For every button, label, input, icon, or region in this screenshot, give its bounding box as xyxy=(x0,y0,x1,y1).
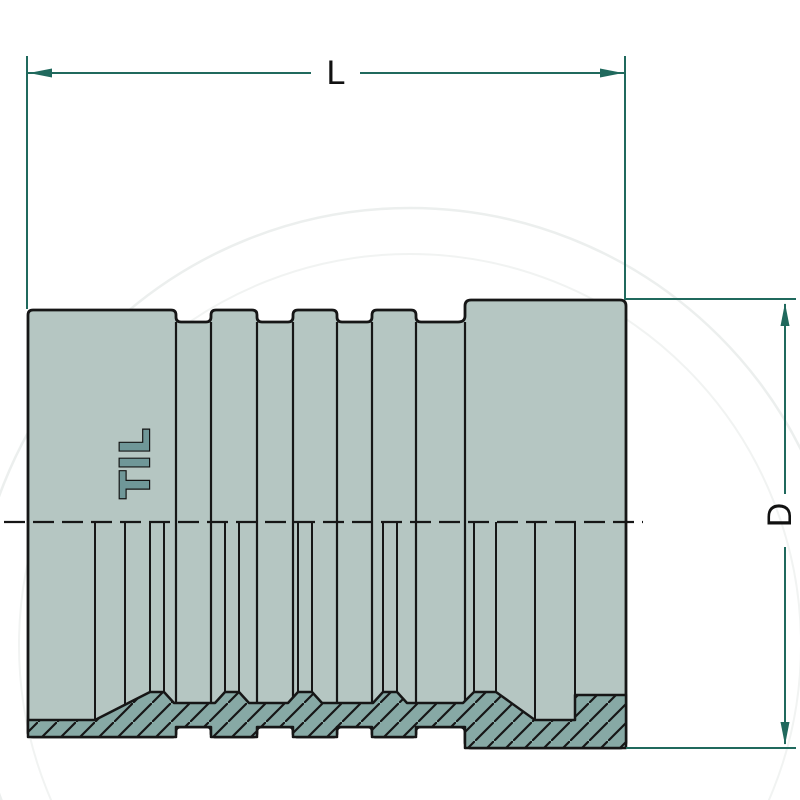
ferrule-outline xyxy=(28,300,626,748)
arrowhead-up xyxy=(781,303,790,326)
brand-logo-text: TIL xyxy=(113,428,159,499)
ferrule-section-drawing: TIL L D xyxy=(0,0,800,800)
arrowhead-left xyxy=(29,69,52,78)
arrowhead-right xyxy=(600,69,623,78)
technical-drawing-canvas: TIL L D xyxy=(0,0,800,800)
dimension-L: L xyxy=(27,54,796,309)
dimension-D-label: D xyxy=(761,503,799,528)
dimension-D: D xyxy=(626,303,799,748)
dimension-L-label: L xyxy=(327,54,346,92)
extension-line-right xyxy=(625,56,796,299)
ferrule-body: TIL xyxy=(4,300,643,748)
